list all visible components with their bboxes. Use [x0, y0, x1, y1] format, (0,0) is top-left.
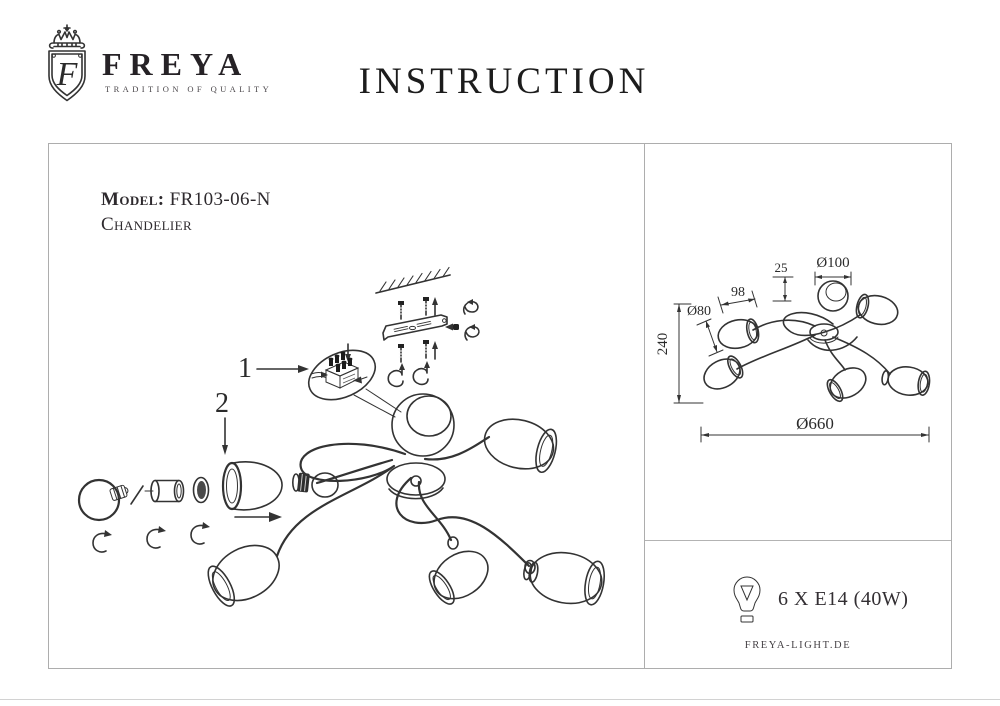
- dim-label: Ø660: [796, 414, 834, 433]
- bare-socket: [293, 473, 338, 497]
- hook-icon: [413, 361, 430, 384]
- bulb-icon: [731, 574, 763, 636]
- s-hook-icon: [465, 324, 479, 340]
- twist-arrow-icon: [191, 522, 210, 544]
- pin: [131, 486, 143, 504]
- shade: [424, 542, 497, 610]
- assembly-diagram: 1: [49, 144, 644, 668]
- top-shade-rim: [407, 396, 451, 436]
- mini-shade: [699, 352, 747, 394]
- dim-label: Ø100: [816, 255, 849, 271]
- arm-joint: [448, 537, 458, 549]
- dim-label: 98: [731, 285, 745, 300]
- dim-label: 25: [775, 260, 788, 275]
- hook-icon: [388, 363, 405, 386]
- twist-arrow-icon: [147, 526, 166, 548]
- ceiling-hatching: [376, 268, 450, 294]
- shade: [202, 534, 289, 612]
- bulb: [79, 480, 130, 520]
- shade: [520, 546, 608, 609]
- brand-logo: F FREYA TRADITION OF QUALITY: [44, 18, 364, 118]
- mini-shade: [854, 291, 901, 328]
- exploded-parts: [79, 462, 282, 552]
- arm: [277, 444, 405, 556]
- screw-icon: [398, 344, 404, 362]
- dim-label: 240: [655, 333, 671, 356]
- website-url: FREYA-LIGHT.DE: [645, 640, 951, 651]
- arrow-up-icon: [432, 341, 438, 359]
- threaded-ring: [194, 478, 209, 503]
- dim-shade-side: Ø80: [687, 304, 723, 356]
- callout-1: 1: [238, 353, 309, 384]
- brand-tagline: TRADITION OF QUALITY: [105, 84, 272, 94]
- shield-icon: F: [49, 51, 85, 101]
- mini-shade: [880, 364, 931, 398]
- dim-label: Ø80: [687, 304, 711, 319]
- canopy: [387, 463, 445, 499]
- mini-arms: [737, 313, 890, 374]
- dim-overall-diameter: Ø660: [701, 414, 929, 442]
- callout-2-label: 2: [215, 388, 229, 419]
- chandelier-body: [202, 394, 608, 612]
- arrow-up-icon: [432, 297, 438, 315]
- top-shade: [392, 394, 454, 456]
- screw-icon: [423, 297, 429, 315]
- callout-2: 2: [215, 388, 229, 455]
- arm: [396, 478, 529, 566]
- panel-divider: [645, 540, 951, 541]
- dim-shade-width: 98: [718, 285, 757, 313]
- mounting-bracket: [383, 315, 447, 340]
- arrow-down-icon: [222, 445, 228, 455]
- assembly-panel: Model: FR103-06-N Chandelier: [48, 143, 645, 669]
- arrow-right-icon: [235, 512, 282, 522]
- shade: [479, 412, 560, 476]
- dimensions-panel: Ø100 25 98: [645, 143, 952, 669]
- screw-icon: [398, 301, 404, 319]
- mounting-hardware: [383, 297, 479, 386]
- lamp-spec: 6 X E14 (40W): [778, 588, 908, 611]
- brand-name: FREYA: [102, 46, 249, 83]
- terminal-block-detail: [301, 341, 401, 417]
- socket-sleeve: [145, 481, 184, 502]
- dim-canopy-drop: 25: [773, 260, 793, 301]
- screw-icon: [423, 340, 429, 358]
- glass-shade: [223, 462, 282, 510]
- callout-1-label: 1: [238, 353, 252, 384]
- shield-crown-icon: F: [44, 22, 90, 106]
- s-hook-icon: [464, 299, 478, 314]
- spec-row: 6 X E14 (40W) FREYA-LIGHT.DE: [645, 542, 951, 670]
- arm: [425, 437, 489, 459]
- crown-icon: [50, 25, 85, 48]
- emblem-letter: F: [56, 56, 79, 93]
- mini-shade: [823, 362, 871, 405]
- mini-shade: [716, 316, 761, 352]
- page-bottom-rule: [0, 699, 1000, 700]
- terminal-block: [311, 352, 367, 388]
- twist-arrow-icon: [93, 530, 112, 552]
- instruction-sheet: F FREYA TRADITION OF QUALITY INSTRUCTION…: [0, 0, 1000, 706]
- page-title: INSTRUCTION: [359, 60, 650, 103]
- arrow-right-icon: [298, 365, 309, 373]
